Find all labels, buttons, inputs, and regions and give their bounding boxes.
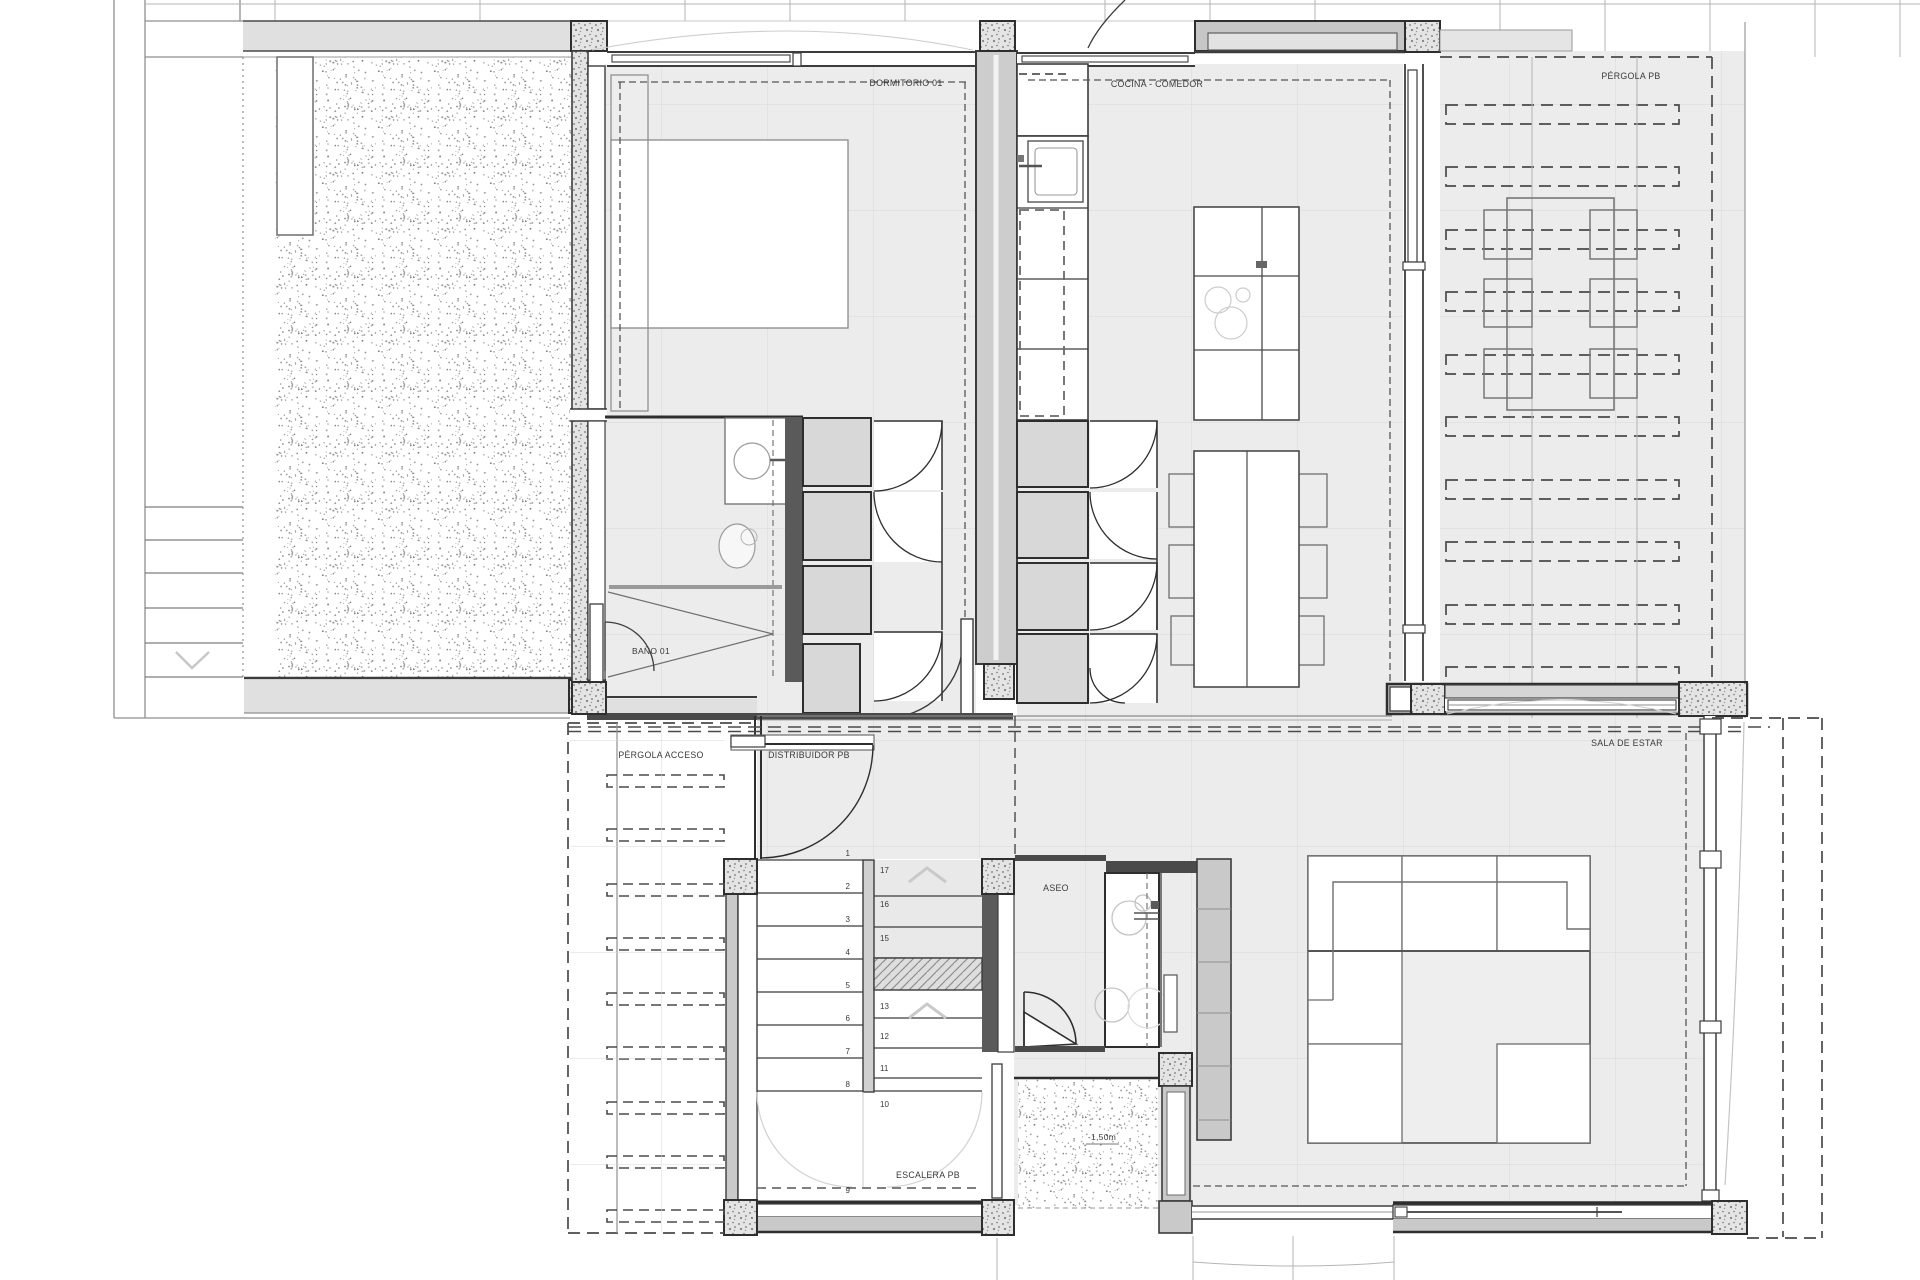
svg-text:17: 17 (880, 866, 889, 875)
svg-text:1: 1 (846, 849, 851, 858)
svg-text:12: 12 (880, 1032, 889, 1041)
svg-text:9: 9 (846, 1186, 851, 1195)
svg-text:2: 2 (846, 882, 851, 891)
svg-text:ESCALERA PB: ESCALERA PB (896, 1170, 960, 1180)
svg-text:7: 7 (846, 1047, 851, 1056)
svg-text:5: 5 (846, 981, 851, 990)
svg-text:DISTRIBUIDOR PB: DISTRIBUIDOR PB (768, 750, 850, 760)
svg-text:10: 10 (880, 1100, 889, 1109)
svg-text:16: 16 (880, 900, 889, 909)
svg-text:-1,50m: -1,50m (1088, 1132, 1116, 1142)
svg-text:PÉRGOLA PB: PÉRGOLA PB (1601, 71, 1660, 81)
svg-text:4: 4 (846, 948, 851, 957)
svg-text:PÉRGOLA ACCESO: PÉRGOLA ACCESO (618, 750, 703, 760)
svg-text:DORMITORIO 01: DORMITORIO 01 (869, 78, 942, 88)
svg-text:ASEO: ASEO (1043, 883, 1069, 893)
svg-text:15: 15 (880, 934, 889, 943)
svg-text:13: 13 (880, 1002, 889, 1011)
svg-text:11: 11 (880, 1064, 889, 1073)
svg-text:SALA DE ESTAR: SALA DE ESTAR (1591, 738, 1663, 748)
svg-text:BAÑO 01: BAÑO 01 (632, 646, 670, 656)
svg-text:3: 3 (846, 915, 851, 924)
svg-text:COCINA - COMEDOR: COCINA - COMEDOR (1111, 79, 1203, 89)
svg-text:8: 8 (846, 1080, 851, 1089)
svg-text:6: 6 (846, 1014, 851, 1023)
